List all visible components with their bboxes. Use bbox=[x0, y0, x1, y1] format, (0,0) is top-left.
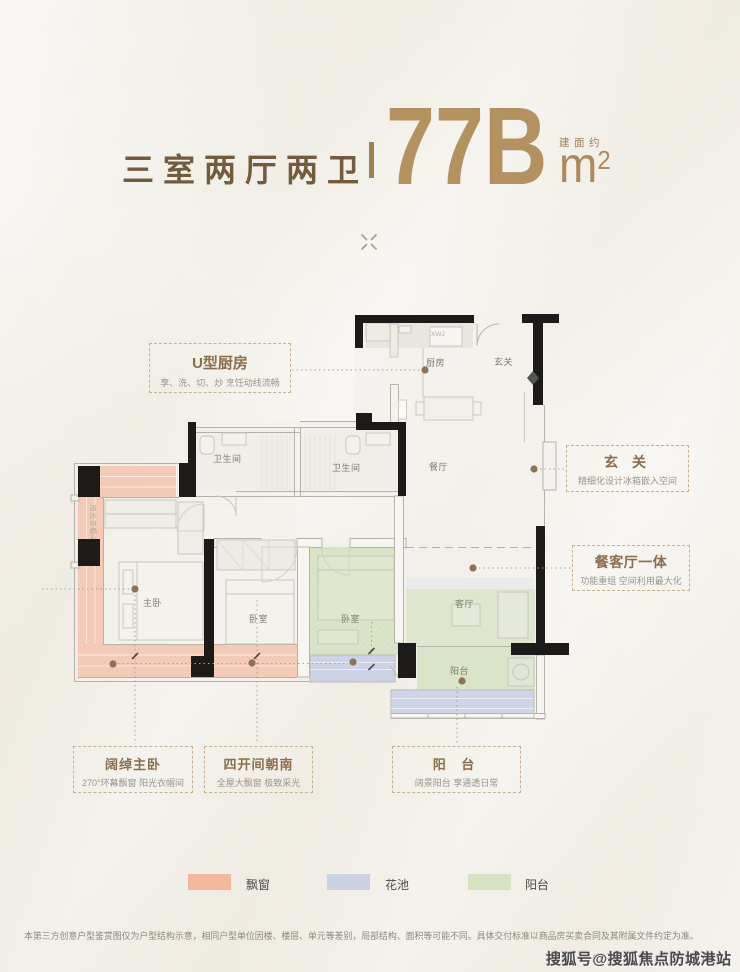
svg-text:阳光衣帽间: 阳光衣帽间 bbox=[89, 505, 98, 543]
svg-text:主卧: 主卧 bbox=[143, 597, 162, 608]
svg-text:厨房: 厨房 bbox=[426, 357, 445, 368]
svg-text:XWJ: XWJ bbox=[431, 331, 445, 338]
svg-text:阳台: 阳台 bbox=[450, 665, 469, 676]
svg-text:餐厅: 餐厅 bbox=[429, 461, 448, 472]
svg-text:卧室: 卧室 bbox=[341, 613, 360, 624]
svg-text:卧室: 卧室 bbox=[249, 613, 268, 624]
svg-text:玄关: 玄关 bbox=[494, 356, 513, 367]
svg-text:客厅: 客厅 bbox=[455, 598, 474, 609]
svg-text:卫生间: 卫生间 bbox=[332, 462, 361, 473]
svg-text:卫生间: 卫生间 bbox=[213, 453, 242, 464]
